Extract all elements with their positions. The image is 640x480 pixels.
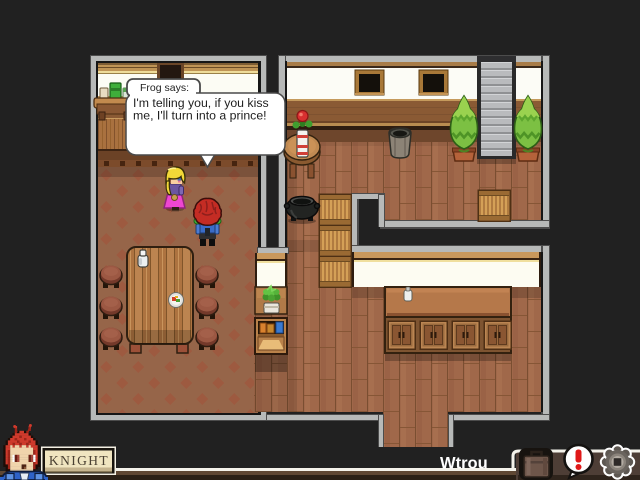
svg-text:Frog says:: Frog says: xyxy=(140,82,189,94)
svg-text:Wtrou: Wtrou xyxy=(440,455,488,473)
svg-text:me, I'll turn into a prince!: me, I'll turn into a prince! xyxy=(133,109,267,123)
svg-text:KNIGHT: KNIGHT xyxy=(49,453,109,468)
